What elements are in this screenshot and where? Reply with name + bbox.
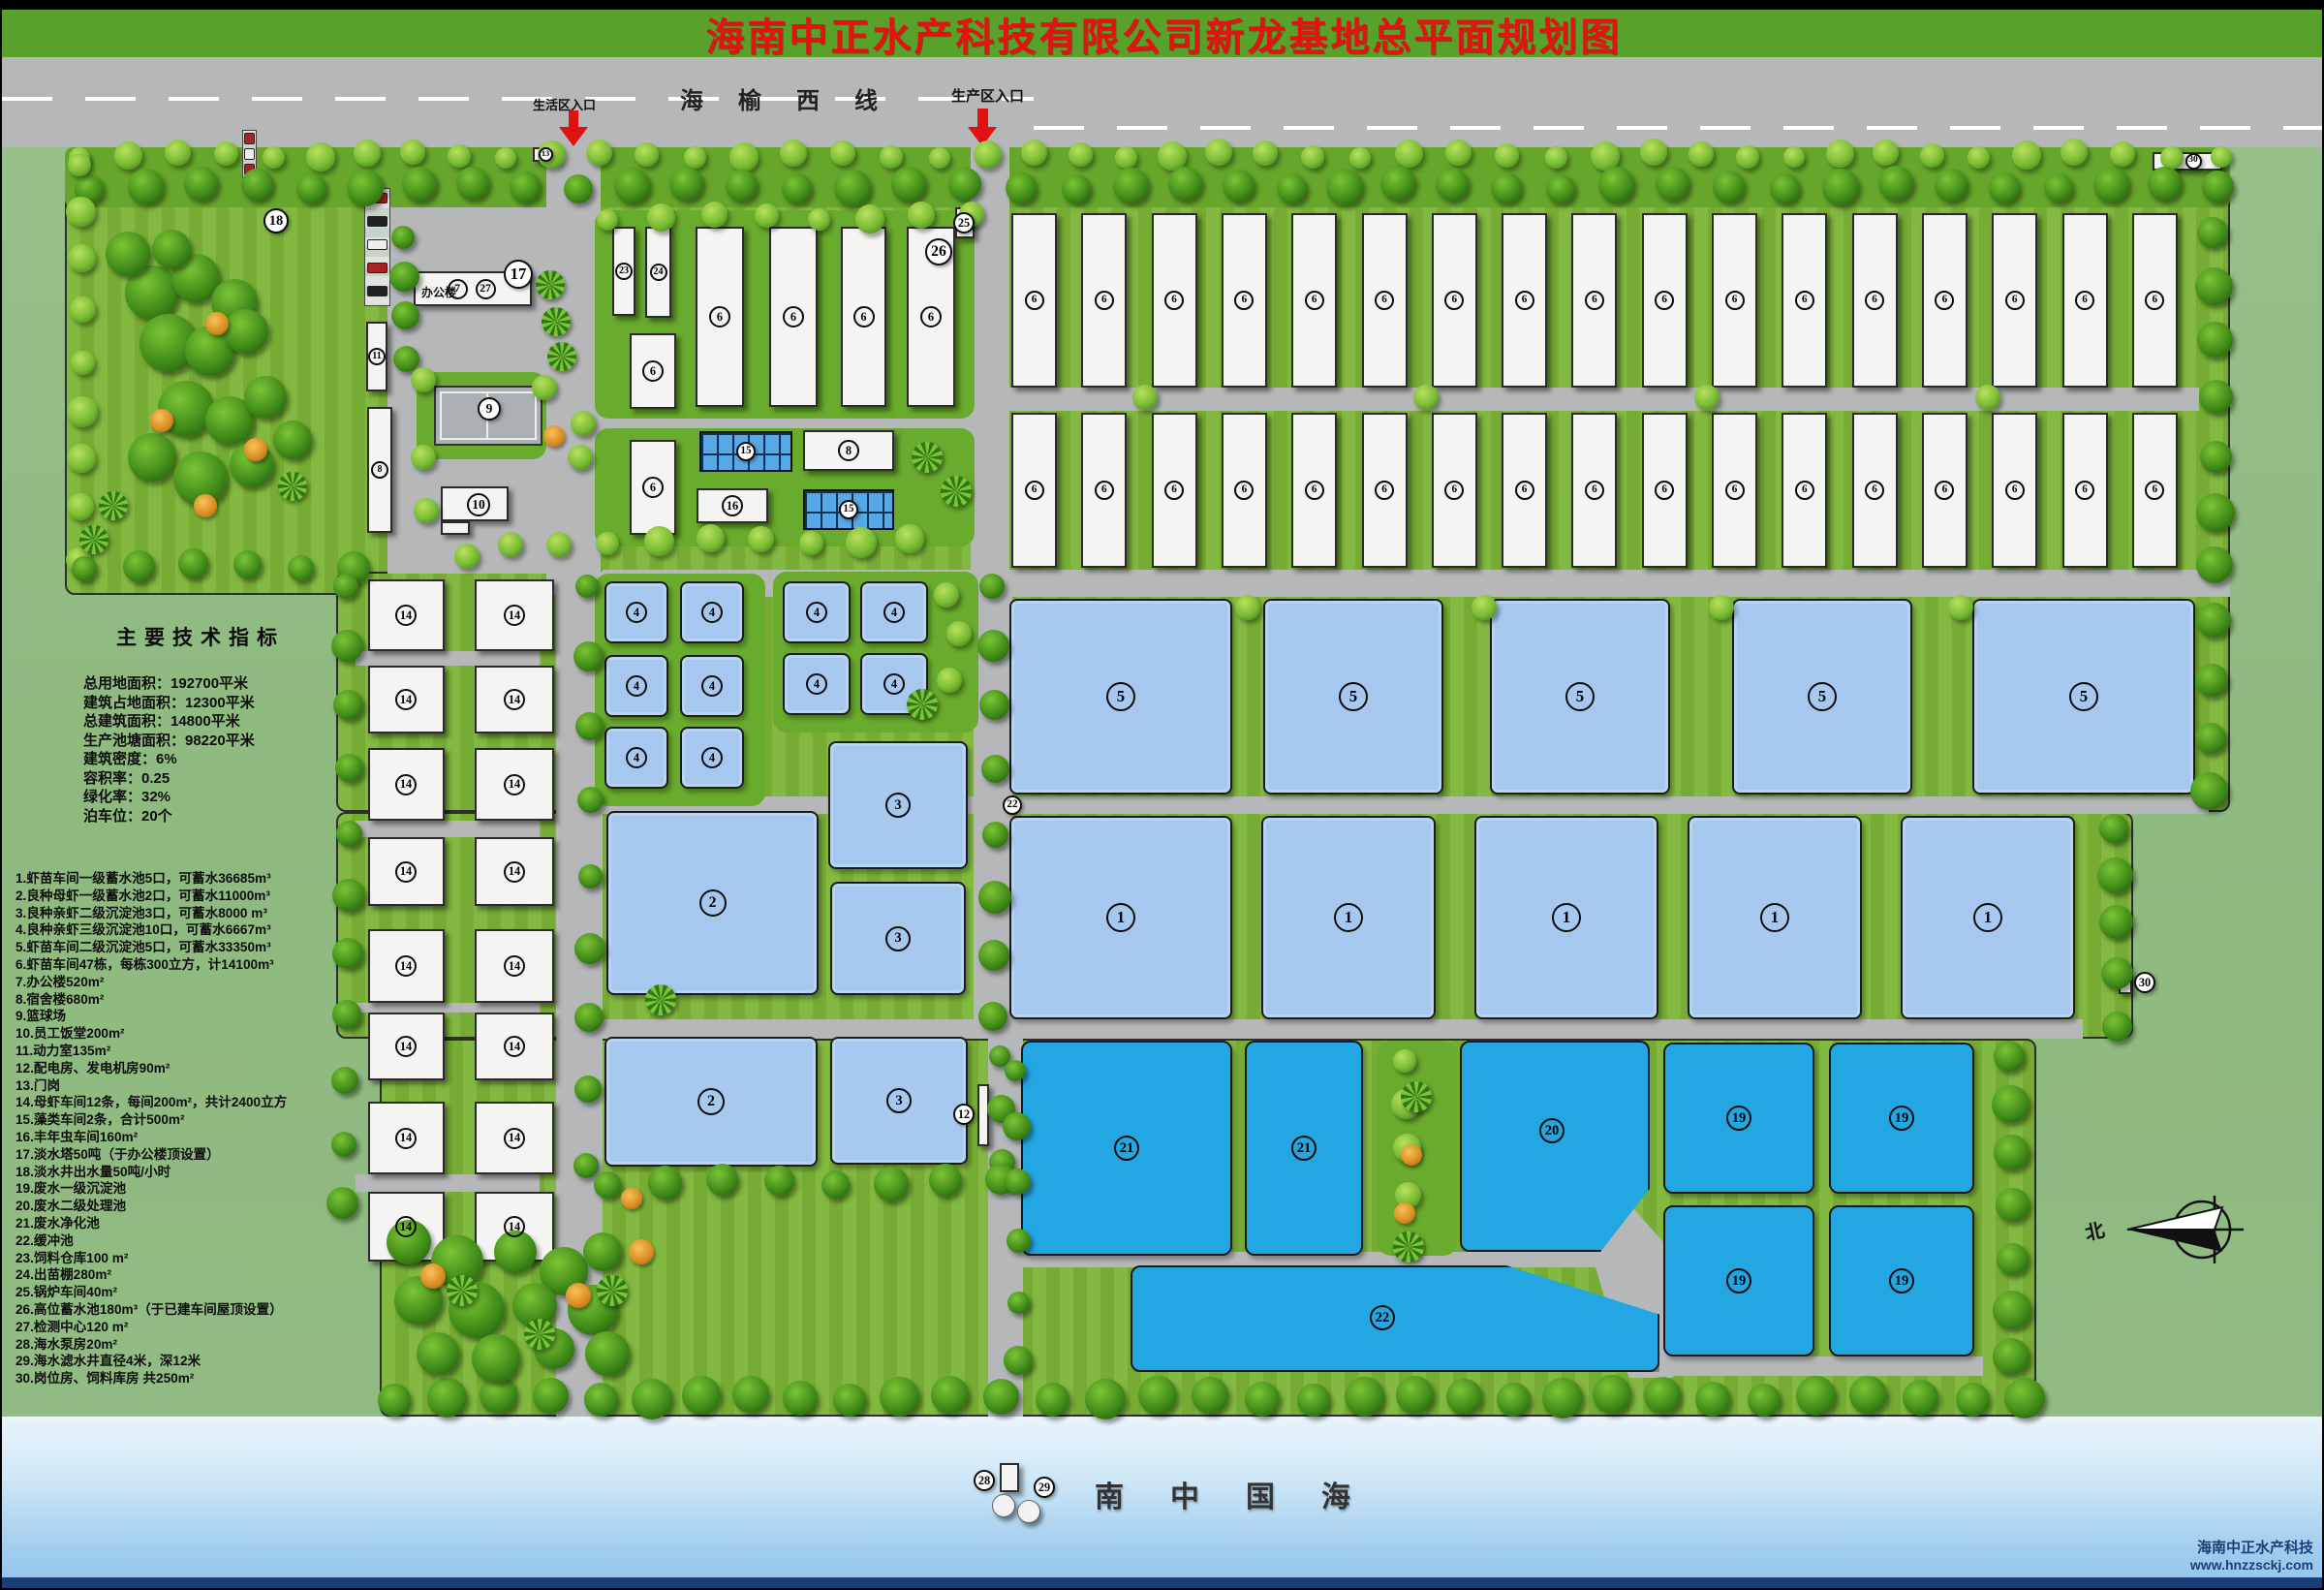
- marker-6: 6: [1375, 481, 1394, 500]
- marker-6: 6: [1795, 481, 1814, 500]
- tree-icon: [263, 146, 285, 169]
- tree-icon: [224, 309, 268, 354]
- tree-icon: [498, 532, 523, 557]
- tree-icon: [880, 145, 903, 169]
- tree-icon: [729, 142, 759, 171]
- car-icon: [367, 239, 387, 250]
- lane: [356, 821, 540, 837]
- indicator-line: 总建筑面积：14800平米: [83, 712, 374, 732]
- tree-icon: [273, 421, 312, 459]
- palm-tree: [99, 491, 128, 520]
- legend-item: 7.办公楼520m²: [15, 974, 335, 991]
- marker-1: 1: [1106, 903, 1135, 932]
- tree-icon: [67, 444, 96, 473]
- legend: 1.虾苗车间一级蓄水池5口，可蓄水36685m³2.良种母虾一级蓄水池2口，可蓄…: [15, 870, 335, 1387]
- tree-icon: [697, 524, 725, 552]
- tree-icon: [575, 575, 599, 598]
- tree-icon: [978, 940, 1009, 971]
- marker-22: 22: [1370, 1305, 1395, 1330]
- road-name: 海榆西线: [680, 81, 913, 115]
- tree-icon: [568, 445, 593, 470]
- tree-icon: [1689, 141, 1714, 167]
- tree-icon: [2202, 171, 2234, 203]
- marker-4: 4: [701, 675, 723, 697]
- marker-2: 2: [699, 889, 727, 917]
- marker-5: 5: [1106, 682, 1135, 711]
- legend-item: 16.丰年虫车间160m²: [15, 1129, 335, 1146]
- bush-orange: [629, 1239, 654, 1264]
- tree-icon: [472, 1334, 520, 1383]
- tree-icon: [1445, 140, 1472, 166]
- marker-6: 6: [1305, 291, 1324, 310]
- bush-orange: [566, 1283, 591, 1308]
- palm-tree: [597, 1275, 628, 1306]
- tree-icon: [644, 526, 674, 556]
- marker-14: 14: [504, 1036, 525, 1057]
- tree-icon: [808, 208, 830, 231]
- tree-icon: [978, 1002, 1007, 1031]
- tree-icon: [152, 230, 191, 268]
- palm-tree: [447, 1275, 478, 1306]
- sea-name: 南中国海: [1095, 1473, 1397, 1515]
- page-title: 海南中正水产科技有限公司新龙基地总平面规划图: [706, 6, 1623, 62]
- tree-icon: [1138, 1376, 1177, 1415]
- legend-item: 3.良种亲虾二级沉淀池3口，可蓄水8000 m³: [15, 905, 335, 922]
- tree-icon: [2196, 603, 2231, 638]
- tree-icon: [783, 1381, 818, 1416]
- tree-icon: [326, 1187, 358, 1219]
- tree-icon: [929, 147, 950, 169]
- pump-house-28: [1000, 1463, 1019, 1492]
- production-entrance-label: 生产区入口: [951, 85, 1024, 106]
- marker-14: 14: [504, 774, 525, 795]
- tree-icon: [931, 1376, 969, 1414]
- legend-list: 1.虾苗车间一级蓄水池5口，可蓄水36685m³2.良种母虾一级蓄水池2口，可蓄…: [15, 870, 335, 1387]
- legend-item: 27.检测中心120 m²: [15, 1319, 335, 1336]
- marker-19: 19: [1726, 1106, 1751, 1131]
- marker-4: 4: [806, 602, 827, 623]
- tree-icon: [1005, 1060, 1026, 1081]
- tree-icon: [1301, 145, 1324, 169]
- marker-14: 14: [395, 774, 417, 795]
- marker-27: 27: [476, 279, 496, 299]
- tree-icon: [594, 1171, 621, 1199]
- tree-icon: [575, 712, 604, 740]
- legend-item: 6.虾苗车间47栋，每栋300立方，计14100m³: [15, 956, 335, 974]
- marker-28: 28: [974, 1470, 995, 1491]
- marker-14: 14: [395, 1036, 417, 1057]
- tree-icon: [296, 173, 326, 203]
- marker-6: 6: [783, 306, 804, 327]
- legend-item: 14.母虾车间12条，每间200m²，共计2400立方: [15, 1094, 335, 1111]
- tree-icon: [764, 1166, 794, 1196]
- tree-icon: [1113, 168, 1149, 203]
- tree-icon: [648, 1166, 682, 1200]
- tree-icon: [564, 174, 593, 203]
- tree-icon: [1393, 1049, 1416, 1073]
- tree-icon: [1235, 595, 1260, 620]
- site-plan: 海南中正水产科技有限公司新龙基地总平面规划图 海榆西线 生活区入口 生产区入口 …: [0, 0, 2324, 1590]
- tree-icon: [123, 550, 155, 582]
- bottom-bar: [2, 1577, 2324, 1590]
- tree-icon: [979, 574, 1005, 599]
- tree-icon: [331, 1132, 356, 1157]
- marker-6: 6: [1585, 481, 1604, 500]
- marker-8: 8: [838, 440, 859, 461]
- marker-14: 14: [395, 861, 417, 883]
- tree-icon: [1546, 174, 1575, 203]
- indicator-line: 泊车位：20个: [83, 807, 374, 826]
- palm-tree: [536, 270, 565, 299]
- lane: [356, 1003, 540, 1013]
- marker-14: 14: [395, 689, 417, 710]
- tree-icon: [414, 498, 439, 523]
- pond-road-2: [601, 1019, 2083, 1039]
- tree-icon: [2197, 322, 2233, 358]
- indicator-line: 生产池塘面积：98220平米: [83, 732, 374, 751]
- legend-item: 4.良种亲虾三级沉淀池10口，可蓄水6667m³: [15, 921, 335, 939]
- marker-4: 4: [701, 747, 723, 768]
- filter-well: [1017, 1500, 1040, 1523]
- bush-orange: [150, 409, 173, 432]
- legend-item: 24.出苗棚280m²: [15, 1266, 335, 1284]
- legend-item: 10.员工饭堂200m²: [15, 1025, 335, 1043]
- tree-icon: [799, 531, 823, 555]
- tree-icon: [946, 621, 972, 646]
- marker-4: 4: [626, 747, 647, 768]
- bush-orange: [420, 1263, 446, 1289]
- tree-icon: [1436, 168, 1469, 201]
- marker-6: 6: [1515, 481, 1534, 500]
- tree-icon: [1006, 172, 1037, 203]
- tree-icon: [574, 1076, 602, 1103]
- marker-6: 6: [1375, 291, 1394, 310]
- marker-4: 4: [626, 602, 647, 623]
- tree-icon: [331, 1067, 358, 1094]
- tree-icon: [1993, 1291, 2031, 1329]
- tree-icon: [1640, 139, 1667, 166]
- building-12: [977, 1084, 989, 1146]
- tree-icon: [1192, 1377, 1228, 1414]
- marker-6: 6: [642, 360, 664, 382]
- marker-6: 6: [1585, 291, 1604, 310]
- marker-14: 14: [395, 605, 417, 626]
- tree-icon: [1245, 1382, 1280, 1417]
- tree-icon: [1994, 1041, 2025, 1072]
- tree-icon: [583, 1232, 622, 1271]
- tree-icon: [1903, 1380, 1938, 1416]
- marker-15: 15: [736, 442, 756, 461]
- legend-item: 26.高位蓄水池180m³（于已建车间屋顶设置）: [15, 1301, 335, 1319]
- living-entrance-label: 生活区入口: [533, 95, 596, 113]
- tree-icon: [448, 144, 471, 168]
- marker-6: 6: [1164, 291, 1184, 310]
- marker-2: 2: [697, 1088, 725, 1115]
- tree-icon: [833, 1384, 866, 1417]
- tree-icon: [2211, 146, 2232, 168]
- bush-orange: [205, 312, 229, 335]
- marker-6: 6: [853, 306, 875, 327]
- tree-icon: [378, 1384, 411, 1417]
- marker-7: 7: [448, 279, 468, 299]
- tree-icon: [585, 1331, 630, 1376]
- technical-indicators: 主要技术指标 总用地面积：192700平米建筑占地面积：12300平米总建筑面积…: [83, 622, 374, 826]
- living-entrance-arrowhead: [559, 127, 588, 146]
- tree-icon: [1656, 167, 1689, 201]
- marker-19: 19: [1726, 1268, 1751, 1294]
- tree-icon: [983, 1379, 1019, 1415]
- tree-icon: [706, 1164, 738, 1196]
- tree-icon: [1003, 1112, 1031, 1140]
- legend-item: 15.藻类车间2条，合计500m²: [15, 1111, 335, 1129]
- marker-14: 14: [504, 861, 525, 883]
- palm-tree: [278, 472, 307, 501]
- filter-well: [992, 1494, 1015, 1517]
- bush-orange: [1401, 1144, 1422, 1166]
- tree-icon: [2099, 814, 2128, 843]
- tree-icon: [1472, 595, 1497, 620]
- tree-icon: [573, 1153, 599, 1178]
- legend-item: 11.动力室135m²: [15, 1043, 335, 1060]
- tree-icon: [306, 142, 335, 171]
- legend-item: 23.饲料仓库100 m²: [15, 1250, 335, 1267]
- marker-15: 15: [839, 500, 858, 519]
- tree-icon: [72, 556, 97, 581]
- indicators-list: 总用地面积：192700平米建筑占地面积：12300平米总建筑面积：14800平…: [83, 674, 374, 826]
- tree-icon: [891, 167, 926, 202]
- marker-6: 6: [2075, 291, 2094, 310]
- tree-icon: [1413, 385, 1439, 410]
- marker-1: 1: [1760, 903, 1789, 932]
- tree-icon: [1253, 140, 1278, 166]
- tree-icon: [1644, 1377, 1681, 1414]
- marker-3: 3: [885, 926, 911, 951]
- tree-icon: [411, 445, 436, 470]
- legend-item: 25.锅炉车间40m²: [15, 1284, 335, 1301]
- palm-tree: [1393, 1231, 1424, 1263]
- tree-icon: [1849, 1376, 1887, 1414]
- marker-23: 23: [615, 263, 633, 280]
- tree-icon: [669, 167, 703, 201]
- tree-icon: [532, 375, 557, 400]
- tree-icon: [402, 167, 437, 202]
- tree-icon: [1975, 385, 2000, 410]
- marker-6: 6: [1305, 481, 1324, 500]
- marker-6: 6: [642, 477, 664, 498]
- palm-tree: [912, 442, 943, 473]
- tree-icon: [2195, 267, 2233, 305]
- palm-tree: [79, 525, 108, 554]
- marker-6: 6: [709, 306, 730, 327]
- marker-22: 22: [1003, 795, 1022, 815]
- car-icon: [367, 263, 387, 273]
- tree-icon: [128, 169, 164, 204]
- tree-icon: [1873, 140, 1899, 166]
- lane-line: [1034, 126, 2324, 130]
- tree-icon: [1935, 169, 1968, 202]
- tree-icon: [427, 1378, 467, 1418]
- legend-item: 9.篮球场: [15, 1008, 335, 1025]
- tree-icon: [214, 141, 238, 166]
- indicator-line: 绿化率：32%: [83, 788, 374, 807]
- compass: 北: [2085, 1196, 2246, 1263]
- palm-tree: [542, 307, 571, 336]
- tree-icon: [1994, 1135, 2030, 1170]
- tree-icon: [184, 167, 218, 201]
- legend-item: 8.宿舍楼680m²: [15, 991, 335, 1009]
- marker-6: 6: [2005, 291, 2025, 310]
- tree-icon: [1948, 595, 1973, 620]
- tree-icon: [1822, 169, 1859, 205]
- marker-19: 19: [1889, 1106, 1914, 1131]
- marker-14: 14: [504, 1128, 525, 1149]
- tree-icon: [1446, 1379, 1482, 1415]
- shed-row-road: [1007, 388, 2199, 411]
- marker-6: 6: [2005, 481, 2025, 500]
- marker-19: 19: [1889, 1268, 1914, 1294]
- legend-item: 19.废水一级沉淀池: [15, 1180, 335, 1198]
- tree-icon: [244, 376, 287, 419]
- marker-6: 6: [1865, 291, 1884, 310]
- tree-icon: [1495, 143, 1519, 168]
- marker-12: 12: [953, 1104, 975, 1125]
- marker-4: 4: [626, 675, 647, 697]
- indicator-line: 总用地面积：192700平米: [83, 674, 374, 694]
- tree-icon: [456, 167, 489, 200]
- tree-icon: [1695, 1382, 1730, 1417]
- tree-icon: [1796, 1376, 1836, 1416]
- tree-icon: [1345, 1377, 1384, 1417]
- tree-icon: [68, 153, 91, 176]
- legend-item: 2.良种母虾一级蓄水池2口，可蓄水11000m³: [15, 888, 335, 905]
- marker-11: 11: [368, 348, 386, 365]
- tree-icon: [178, 548, 208, 578]
- marker-29: 29: [1034, 1477, 1055, 1498]
- tree-icon: [1491, 172, 1522, 203]
- marker-25: 25: [953, 212, 975, 234]
- marker-14: 14: [504, 955, 525, 977]
- tree-icon: [2101, 957, 2133, 989]
- marker-26: 26: [925, 238, 952, 265]
- title-bar: 海南中正水产科技有限公司新龙基地总平面规划图: [2, 10, 2324, 57]
- tree-icon: [874, 1167, 909, 1201]
- marker-14: 14: [395, 1216, 417, 1237]
- tree-icon: [726, 170, 758, 202]
- marker-6: 6: [1025, 481, 1044, 500]
- marker-4: 4: [806, 673, 827, 695]
- tree-icon: [647, 203, 675, 232]
- watermark-url: www.hnzzsckj.com: [2056, 1557, 2313, 1573]
- marker-1: 1: [1334, 903, 1363, 932]
- production-entrance-arrow: [977, 109, 988, 127]
- marker-14: 14: [395, 955, 417, 977]
- marker-3: 3: [885, 793, 911, 818]
- tree-icon: [128, 433, 176, 482]
- tree-icon: [1591, 141, 1620, 171]
- living-entrance-arrow: [569, 110, 578, 127]
- tree-icon: [908, 202, 935, 229]
- tree-icon: [417, 1332, 459, 1375]
- marker-10: 10: [467, 493, 490, 516]
- tree-icon: [1168, 167, 1202, 201]
- tree-icon: [830, 140, 855, 166]
- tree-icon: [1826, 140, 1854, 168]
- marker-1: 1: [1973, 903, 2002, 932]
- tree-icon: [937, 668, 962, 693]
- tree-icon: [1297, 1384, 1330, 1417]
- tree-icon: [533, 1378, 569, 1414]
- tree-icon: [1713, 171, 1745, 203]
- tree-icon: [1062, 174, 1091, 203]
- palm-tree: [1401, 1081, 1432, 1112]
- palm-tree: [941, 476, 972, 507]
- marker-6: 6: [1725, 291, 1745, 310]
- watermark: 海南中正水产科技 www.hnzzsckj.com: [2056, 1537, 2313, 1573]
- tree-icon: [2012, 140, 2041, 170]
- marker-14: 14: [395, 1128, 417, 1149]
- marker-30: 30: [2185, 153, 2202, 170]
- compass-north-label: 北: [2082, 1214, 2107, 1246]
- marker-1: 1: [1552, 903, 1581, 932]
- legend-item: 17.淡水塔50吨（于办公楼顶设置）: [15, 1146, 335, 1164]
- legend-item: 12.配电房、发电机房90m²: [15, 1060, 335, 1077]
- tree-icon: [1085, 1379, 1126, 1419]
- legend-item: 30.岗位房、饲料库房 共250m²: [15, 1370, 335, 1387]
- marker-6: 6: [1164, 481, 1184, 500]
- legend-item: 22.缓冲池: [15, 1232, 335, 1250]
- tree-icon: [333, 690, 363, 720]
- tree-icon: [2093, 167, 2129, 203]
- tree-icon: [241, 169, 273, 201]
- marker-6: 6: [1795, 291, 1814, 310]
- compass-icon: [2110, 1196, 2246, 1263]
- tree-icon: [114, 141, 142, 170]
- legend-item: 29.海水滤水井直径4米，深12米: [15, 1353, 335, 1370]
- legend-item: 18.淡水井出水量50吨/小时: [15, 1164, 335, 1181]
- living-area-road: [546, 147, 601, 595]
- marker-6: 6: [1725, 481, 1745, 500]
- tree-icon: [597, 209, 618, 231]
- tree-icon: [106, 232, 150, 276]
- tree-icon: [834, 170, 871, 206]
- tree-icon: [1783, 146, 1805, 168]
- tree-icon: [1005, 1169, 1031, 1195]
- tree-icon: [571, 411, 596, 436]
- tree-icon: [586, 140, 612, 166]
- tree-icon: [596, 532, 619, 555]
- marker-20: 20: [1539, 1118, 1565, 1143]
- marker-5: 5: [1339, 682, 1368, 711]
- car-icon: [244, 148, 255, 160]
- bush-orange: [1394, 1202, 1415, 1224]
- marker-5: 5: [2069, 682, 2098, 711]
- marker-13: 13: [539, 147, 553, 162]
- tree-icon: [495, 147, 516, 169]
- tree-icon: [411, 367, 436, 392]
- car-icon: [244, 133, 255, 144]
- tree-icon: [1748, 1384, 1781, 1417]
- lane: [356, 651, 540, 666]
- tree-icon: [780, 140, 807, 167]
- tree-icon: [2197, 217, 2228, 248]
- pond-20: [1460, 1041, 1650, 1252]
- lane: [356, 1174, 540, 1192]
- palm-tree: [524, 1319, 555, 1350]
- marker-24: 24: [650, 264, 667, 281]
- marker-14: 14: [504, 1216, 525, 1237]
- tree-icon: [1132, 385, 1158, 410]
- tree-icon: [332, 1000, 361, 1029]
